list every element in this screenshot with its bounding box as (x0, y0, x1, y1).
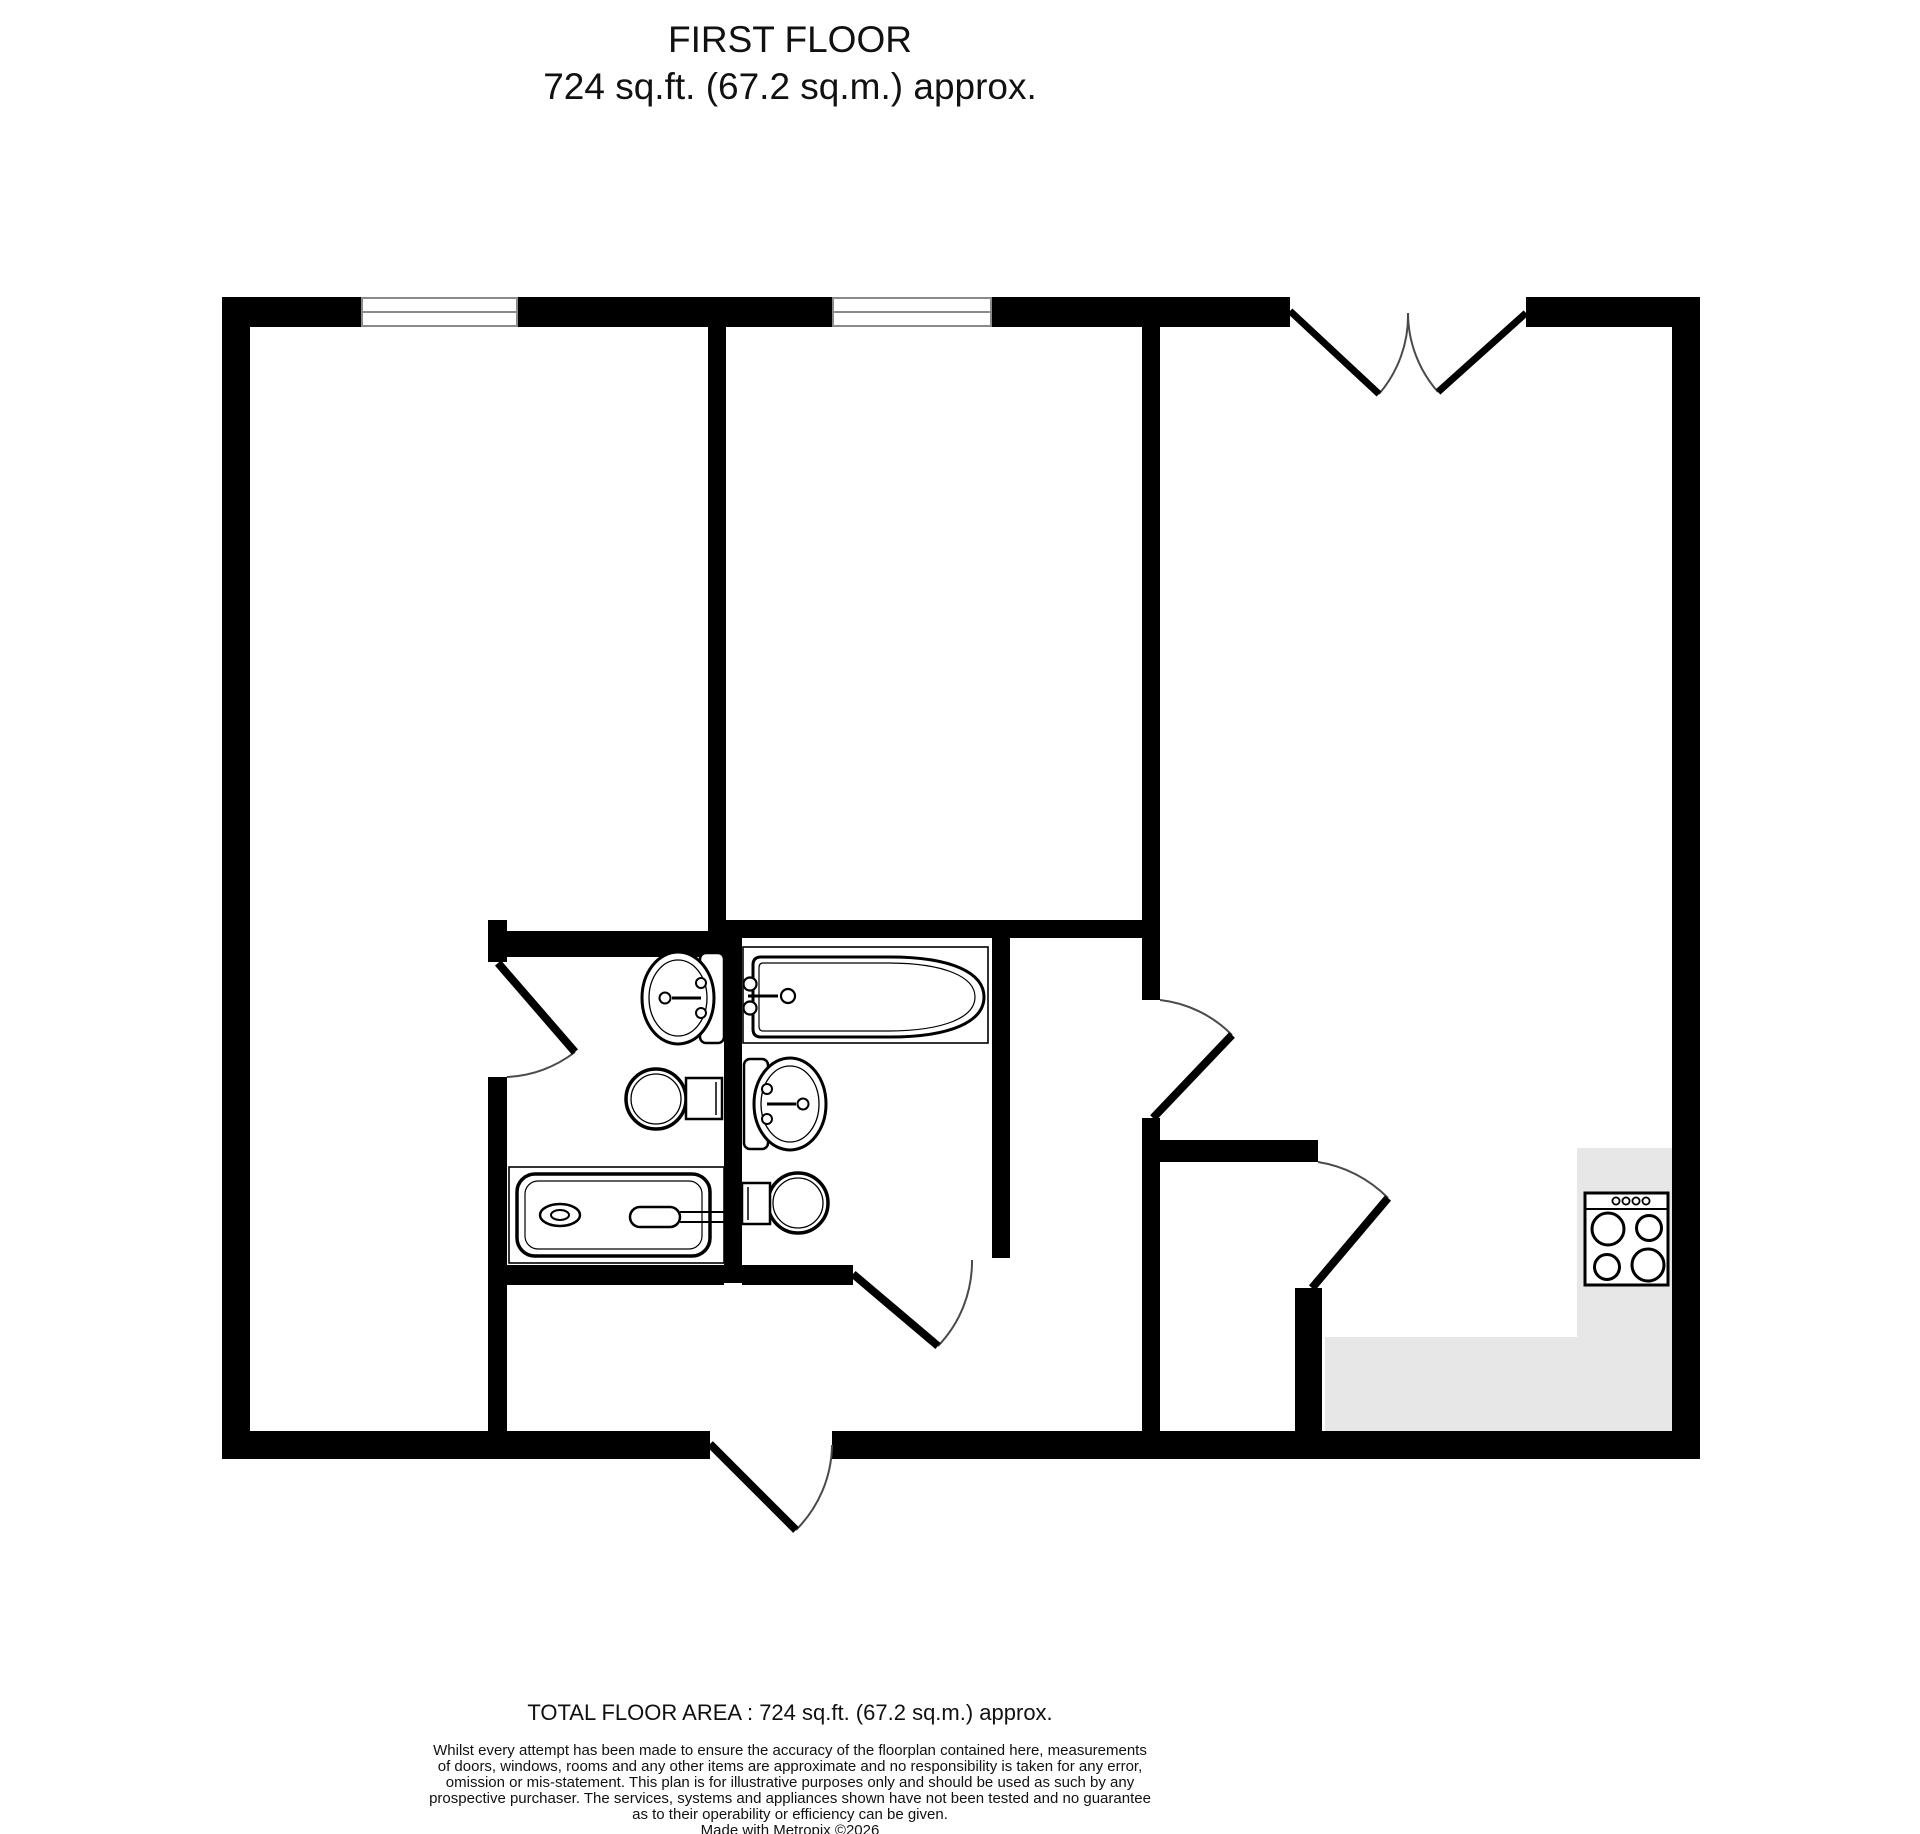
bottom-wall-segment (222, 1431, 710, 1459)
sink-tap-knob (696, 978, 706, 988)
disclaimer-line: as to their operability or efficiency ca… (270, 1807, 1310, 1823)
living-room-door (1153, 1000, 1232, 1118)
shower-handle (630, 1207, 680, 1227)
wall-bathroom-bottom-left (488, 1265, 724, 1285)
hob-burner (1632, 1249, 1664, 1281)
wall-bathroom-right (992, 938, 1010, 1258)
front-door (710, 1444, 832, 1530)
wall-bathroom-divider (724, 938, 742, 1283)
wall-middle-right-top (1142, 325, 1160, 1000)
hob-knob (1632, 1197, 1639, 1204)
door-arc (796, 1445, 832, 1530)
window-1 (362, 298, 517, 326)
pedestal-sink-ensuite (642, 952, 724, 1044)
door-leaf (710, 1444, 796, 1530)
disclaimer-line: of doors, windows, rooms and any other i… (270, 1759, 1310, 1775)
hob-burner (1592, 1213, 1624, 1245)
right-wall (1672, 297, 1700, 1459)
wall-bathroom-bottom-right (742, 1265, 853, 1285)
shower-tray (509, 1167, 724, 1263)
bath-tap (744, 1002, 757, 1015)
hob-burner (1637, 1216, 1662, 1241)
wall-middleroom-bottom (724, 920, 1160, 938)
toilet-bathroom (742, 1173, 828, 1233)
door-leaf (1153, 1035, 1232, 1118)
toilet-bowl (768, 1173, 828, 1233)
metropix-credit: Made with Metropix ©2026 (270, 1823, 1310, 1834)
ensuite-door (498, 963, 575, 1077)
door-arc (1160, 1000, 1232, 1035)
exterior-walls (222, 297, 1700, 1459)
hob-burner (1595, 1255, 1620, 1280)
hob-knob (1612, 1197, 1619, 1204)
bath-tap (744, 978, 757, 991)
bath-drain (781, 989, 795, 1003)
door-leaf (853, 1274, 938, 1346)
door-leaf (498, 963, 575, 1052)
pedestal-sink-bathroom (744, 1058, 826, 1150)
window-2 (833, 298, 991, 326)
counter-bottom-run (1325, 1337, 1672, 1431)
door-arc (1408, 313, 1438, 392)
door-leaf (1290, 311, 1379, 394)
sink-spout-end (660, 993, 671, 1004)
kitchen-counter (1325, 1148, 1672, 1431)
bathroom-door (853, 1260, 972, 1346)
wall-left-middle (708, 325, 726, 957)
door-arc (938, 1260, 972, 1346)
sink-tap-knob (696, 1008, 706, 1018)
door-arc (507, 1052, 575, 1077)
sink-spout-end (798, 1099, 809, 1110)
hob-knob (1642, 1197, 1649, 1204)
sink-tap-knob (762, 1084, 772, 1094)
sink-tap-knob (762, 1114, 772, 1124)
door-leaf (1312, 1198, 1388, 1288)
left-wall (222, 297, 250, 1459)
toilet-cistern (742, 1183, 770, 1224)
closet-door (1312, 1162, 1388, 1288)
door-leaf (1438, 313, 1526, 392)
bottom-wall-segment (832, 1431, 1700, 1459)
toilet-bowl (626, 1069, 686, 1129)
disclaimer: Whilst every attempt has been made to en… (270, 1743, 1310, 1834)
wall-closet-right (1295, 1288, 1322, 1431)
shower-drain (540, 1204, 580, 1226)
cooker-hob (1585, 1193, 1668, 1285)
door-arc (1318, 1162, 1388, 1198)
disclaimer-line: omission or mis-statement. This plan is … (270, 1775, 1310, 1791)
wall-middle-right-bottom (1142, 1118, 1160, 1431)
door-arc (1379, 313, 1408, 394)
toilet-ensuite (626, 1069, 722, 1129)
total-floor-area: TOTAL FLOOR AREA : 724 sq.ft. (67.2 sq.m… (0, 1700, 1580, 1726)
interior-walls (488, 325, 1322, 1431)
floorplan-drawing (0, 0, 1920, 1834)
top-wall-segment (991, 297, 1290, 327)
wall-ensuite-left-bottom (488, 1077, 507, 1431)
floorplan-page: FIRST FLOOR 724 sq.ft. (67.2 sq.m.) appr… (0, 0, 1920, 1834)
wall-closet-top (1160, 1140, 1318, 1162)
bath (743, 947, 988, 1043)
top-wall-segment (517, 297, 833, 327)
disclaimer-line: prospective purchaser. The services, sys… (270, 1791, 1310, 1807)
disclaimer-line: Whilst every attempt has been made to en… (270, 1743, 1310, 1759)
hob-knob (1622, 1197, 1629, 1204)
wall-ensuite-left-top (488, 920, 507, 962)
entrance-double-door (1290, 311, 1526, 394)
